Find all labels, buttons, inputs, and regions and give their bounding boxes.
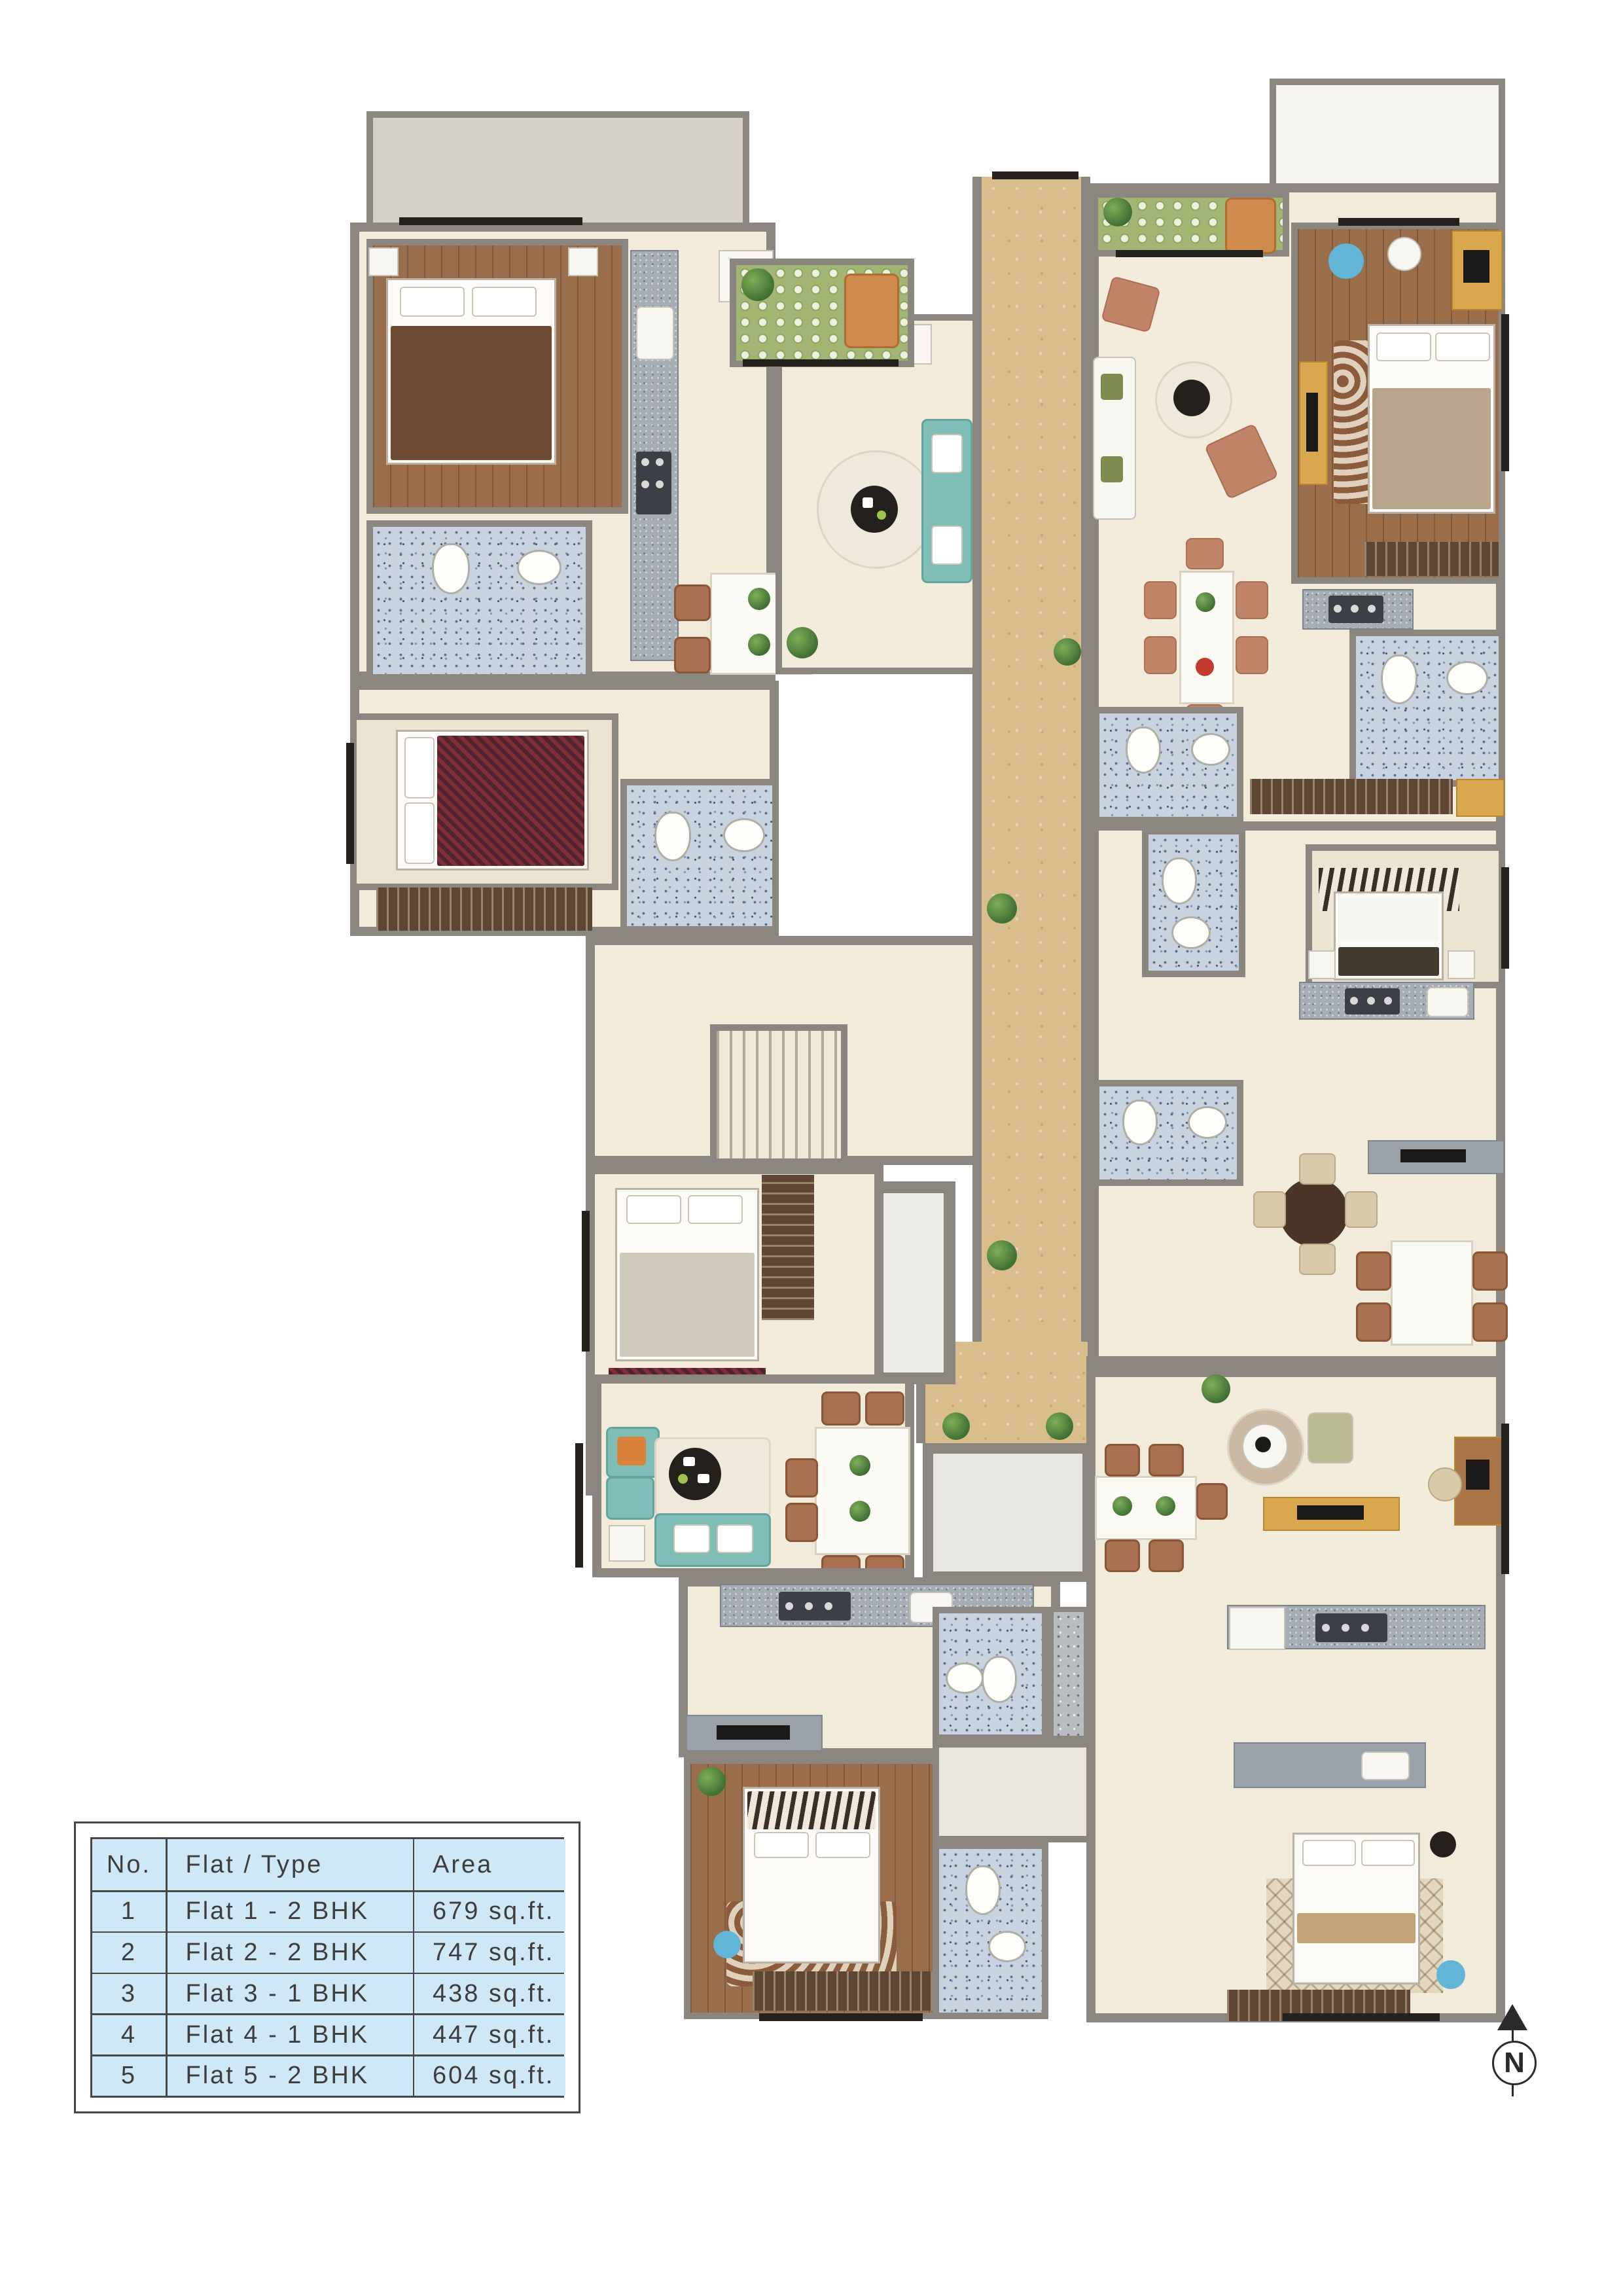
lounge-chair — [1225, 198, 1276, 254]
pouf — [713, 1931, 741, 1958]
table-header-no: No. — [92, 1839, 166, 1890]
flat4-bath1 — [1142, 828, 1245, 977]
window — [399, 217, 582, 225]
kitchen-cabinet — [1229, 1607, 1285, 1650]
table-cell-flat-type: Flat 1 - 2 BHK — [168, 1892, 413, 1931]
plant-icon — [1046, 1412, 1073, 1440]
tv — [717, 1725, 790, 1740]
armchair — [606, 1427, 660, 1478]
wardrobe — [753, 1971, 939, 2011]
table-cell-no: 2 — [92, 1933, 166, 1972]
laptop — [1466, 1460, 1489, 1490]
toilet-icon — [654, 812, 691, 861]
flat2-bath2 — [1093, 707, 1243, 823]
kitchen-sink — [1427, 987, 1469, 1017]
duct — [923, 1443, 1093, 1582]
pouf — [1436, 1960, 1465, 1989]
chair — [821, 1391, 861, 1426]
chair — [1299, 1244, 1336, 1275]
wardrobe — [762, 1175, 814, 1320]
plant-icon — [942, 1412, 970, 1440]
chair — [1356, 1302, 1391, 1342]
coffee-table — [851, 486, 898, 533]
table-cell-flat-type: Flat 2 - 2 BHK — [168, 1933, 413, 1972]
table-cell-no: 5 — [92, 2056, 166, 2096]
armchair — [1308, 1412, 1353, 1463]
window — [582, 1211, 590, 1352]
window — [1501, 314, 1509, 471]
chair — [1105, 1444, 1140, 1477]
plant-icon — [787, 627, 818, 658]
side-table — [609, 1525, 645, 1562]
window — [743, 359, 899, 367]
round-table — [1242, 1424, 1288, 1469]
hob-icon — [1345, 988, 1400, 1014]
sink-icon — [723, 818, 765, 852]
flat-area-table-grid: No. Flat / Type Area 1 Flat 1 - 2 BHK 67… — [90, 1837, 564, 2098]
table-cell-area: 747 sq.ft. — [414, 1933, 565, 1972]
toilet-icon — [432, 543, 470, 594]
plant-icon — [1054, 638, 1081, 666]
plant-icon — [987, 1240, 1017, 1270]
laptop — [1463, 250, 1489, 283]
shaft — [1048, 1607, 1089, 1741]
wall-segment — [1086, 1356, 1505, 1368]
desk — [1456, 779, 1505, 817]
table-header-flat-type: Flat / Type — [168, 1839, 413, 1890]
bed3 — [615, 1188, 759, 1361]
nightstand — [568, 247, 598, 276]
bed1 — [386, 278, 556, 465]
chair — [1149, 1444, 1184, 1477]
chair — [1428, 1467, 1462, 1501]
window — [1283, 2013, 1440, 2021]
toilet-icon — [1126, 726, 1161, 774]
wardrobe — [1364, 542, 1499, 576]
sink-icon — [1188, 1106, 1227, 1139]
chair — [1472, 1302, 1508, 1342]
staircase — [710, 1024, 847, 1165]
window — [575, 1443, 583, 1568]
chair — [1356, 1251, 1391, 1291]
north-arrow-icon — [1497, 2004, 1527, 2030]
chair — [1149, 1539, 1184, 1572]
chair — [1299, 1153, 1336, 1185]
chair — [1472, 1251, 1508, 1291]
bed-mr — [1334, 891, 1444, 980]
wardrobe — [376, 888, 592, 931]
hob-icon — [1328, 596, 1383, 623]
round-table — [1279, 1178, 1348, 1247]
bed-tr — [1368, 324, 1495, 514]
hob-icon — [636, 452, 671, 514]
void-top-right — [1270, 79, 1505, 190]
window — [1501, 867, 1509, 969]
chair — [674, 584, 711, 621]
table-cell-flat-type: Flat 4 - 1 BHK — [168, 2015, 413, 2054]
sofa — [654, 1513, 771, 1567]
table-cell-no: 3 — [92, 1974, 166, 2013]
chair — [1196, 1483, 1228, 1520]
entry-door — [992, 171, 1078, 179]
window — [1338, 218, 1459, 226]
sofa — [1093, 357, 1136, 520]
tv — [1306, 393, 1318, 452]
chair — [1105, 1539, 1140, 1572]
pouf — [1387, 237, 1421, 271]
flat2-dining-table — [1179, 571, 1234, 704]
chair — [1253, 1191, 1286, 1228]
sink-icon — [1191, 733, 1230, 766]
coffee-table — [1173, 380, 1210, 416]
coffee-table — [669, 1448, 721, 1500]
table-cell-area: 604 sq.ft. — [414, 2056, 565, 2096]
window — [346, 743, 354, 864]
hob-icon — [1315, 1613, 1387, 1642]
chair — [1186, 538, 1224, 569]
compass-circle: N — [1492, 2041, 1537, 2085]
window — [1116, 250, 1263, 257]
chair — [1236, 636, 1268, 674]
chair — [674, 637, 711, 673]
chair — [1144, 636, 1177, 674]
bed-br — [1292, 1833, 1420, 1984]
flat1-bath1 — [366, 520, 592, 681]
nightstand — [368, 247, 399, 276]
parapet-top-left — [366, 111, 749, 229]
toilet-icon — [1162, 857, 1197, 905]
sink-icon — [1171, 916, 1211, 949]
hob-icon — [779, 1592, 851, 1621]
lounge-chair — [844, 274, 899, 348]
table-cell-area: 447 sq.ft. — [414, 2015, 565, 2054]
kitchen-sink — [636, 306, 674, 360]
chair — [785, 1503, 818, 1542]
flat5-dining-table — [815, 1427, 910, 1555]
sink-icon — [1446, 661, 1488, 695]
wardrobe — [1250, 779, 1453, 814]
table-cell-no: 1 — [92, 1892, 166, 1931]
chair — [1236, 581, 1268, 619]
sofa — [921, 419, 972, 583]
bed-bl — [743, 1787, 880, 1964]
chair — [785, 1458, 818, 1498]
chair — [865, 1391, 904, 1426]
sink-icon — [988, 1931, 1026, 1962]
toilet-icon — [965, 1865, 1001, 1915]
toilet-icon — [1122, 1100, 1158, 1145]
nightstand — [1448, 950, 1475, 979]
plant-icon — [741, 268, 774, 301]
nightstand — [1308, 950, 1336, 979]
table-cell-no: 4 — [92, 2015, 166, 2054]
toilet-icon — [982, 1656, 1017, 1703]
flat2-bath — [1349, 630, 1505, 787]
wall-segment — [592, 1568, 914, 1577]
window — [759, 2013, 923, 2021]
table-cell-area: 679 sq.ft. — [414, 1892, 565, 1931]
flat4-dining-table — [1391, 1240, 1473, 1346]
floor-plan-sheet: No. Flat / Type Area 1 Flat 1 - 2 BHK 67… — [0, 0, 1621, 2296]
plant-icon — [1202, 1374, 1230, 1403]
compass-label: N — [1504, 2047, 1525, 2079]
table-header-area: Area — [414, 1839, 565, 1890]
table-cell-flat-type: Flat 3 - 1 BHK — [168, 1974, 413, 2013]
flatbr-dining-table — [1095, 1476, 1197, 1540]
table-cell-area: 438 sq.ft. — [414, 1974, 565, 2013]
bed2 — [396, 730, 589, 870]
lamp — [1430, 1831, 1456, 1857]
chair — [1345, 1191, 1378, 1228]
chair — [1144, 581, 1177, 619]
tv — [1297, 1505, 1364, 1520]
tv — [1400, 1149, 1466, 1162]
plant-icon — [1103, 198, 1132, 226]
table-cell-flat-type: Flat 5 - 2 BHK — [168, 2056, 413, 2096]
sink-icon — [946, 1662, 984, 1694]
pouf — [1328, 243, 1364, 279]
armchair — [606, 1477, 654, 1520]
sink-icon — [517, 550, 561, 585]
flat1-bath2 — [620, 779, 779, 933]
kitchen-sink — [1361, 1751, 1410, 1780]
flat-area-table: No. Flat / Type Area 1 Flat 1 - 2 BHK 67… — [74, 1821, 580, 2113]
toilet-icon — [1381, 655, 1417, 704]
window — [1501, 1424, 1509, 1574]
plant-icon — [987, 893, 1017, 924]
plant-icon — [697, 1767, 726, 1796]
